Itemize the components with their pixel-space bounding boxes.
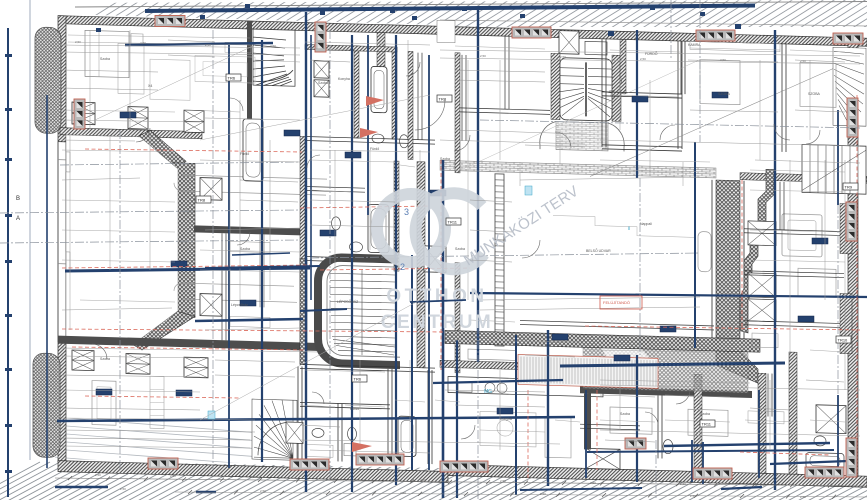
svg-text:OTTHON: OTTHON xyxy=(386,286,487,307)
svg-text:2,50: 2,50 xyxy=(500,479,506,483)
svg-text:3: 3 xyxy=(404,207,409,217)
svg-text:KAMRA: KAMRA xyxy=(688,43,701,47)
svg-text:2,50: 2,50 xyxy=(260,489,266,493)
svg-text:Fürdő: Fürdő xyxy=(370,147,379,151)
svg-text:TR8: TR8 xyxy=(198,198,206,203)
svg-text:Szoba: Szoba xyxy=(455,247,465,251)
svg-text:2,50: 2,50 xyxy=(720,58,726,62)
svg-text:2,50: 2,50 xyxy=(250,475,256,479)
svg-text:FELÚJÍTANDÓ: FELÚJÍTANDÓ xyxy=(603,300,630,305)
svg-text:TR6: TR6 xyxy=(228,76,236,81)
svg-text:Szoba: Szoba xyxy=(700,412,710,416)
svg-text:2,50: 2,50 xyxy=(270,44,276,48)
svg-text:2,50: 2,50 xyxy=(680,482,686,486)
svg-text:FÜRDŐ: FÜRDŐ xyxy=(645,51,658,56)
svg-text:Szoba: Szoba xyxy=(440,157,450,161)
svg-text:TR11: TR11 xyxy=(448,220,458,225)
svg-text:CENTRUM: CENTRUM xyxy=(381,312,494,333)
svg-text:2,50: 2,50 xyxy=(800,59,806,63)
svg-text:TR9: TR9 xyxy=(845,185,853,190)
svg-text:2,50: 2,50 xyxy=(170,474,176,478)
svg-text:A: A xyxy=(16,216,20,222)
svg-text:Konyha: Konyha xyxy=(500,417,512,421)
svg-text:2,50: 2,50 xyxy=(835,484,841,488)
svg-text:2,50: 2,50 xyxy=(420,478,426,482)
svg-text:2,50: 2,50 xyxy=(760,483,766,487)
svg-text:2,50: 2,50 xyxy=(205,43,211,47)
svg-text:Nappali: Nappali xyxy=(640,222,652,226)
svg-text:2,50: 2,50 xyxy=(120,487,126,491)
svg-text:TR8: TR8 xyxy=(439,97,447,102)
svg-text:TR10: TR10 xyxy=(838,338,849,343)
svg-text:2,50: 2,50 xyxy=(540,492,546,496)
svg-text:TR6: TR6 xyxy=(354,377,362,382)
svg-text:SZOBA: SZOBA xyxy=(718,92,731,96)
svg-text:BELSŐ UDVAR: BELSŐ UDVAR xyxy=(586,248,611,253)
svg-text:Szoba: Szoba xyxy=(240,247,250,251)
svg-text:Szoba: Szoba xyxy=(100,57,110,61)
svg-text:SZOBA: SZOBA xyxy=(808,92,821,96)
svg-text:LÉPCSŐHÁZ: LÉPCSŐHÁZ xyxy=(337,299,359,304)
svg-text:2: 2 xyxy=(400,262,405,272)
svg-text:2,50: 2,50 xyxy=(95,473,101,477)
svg-text:2,50: 2,50 xyxy=(560,55,566,59)
svg-text:Szoba: Szoba xyxy=(620,412,630,416)
svg-text:Fürdő: Fürdő xyxy=(240,152,249,156)
svg-text:MG: MG xyxy=(484,389,492,395)
svg-text:2,50: 2,50 xyxy=(590,481,596,485)
svg-text:2,50: 2,50 xyxy=(400,491,406,495)
svg-text:2,50: 2,50 xyxy=(480,54,486,58)
svg-text:Lépcsőház: Lépcsőház xyxy=(231,303,248,307)
svg-text:Konyha: Konyha xyxy=(338,77,350,81)
svg-text:Szoba: Szoba xyxy=(100,357,110,361)
svg-text:2,50: 2,50 xyxy=(690,494,696,498)
svg-text:2,50: 2,50 xyxy=(800,495,806,499)
svg-text:2,50: 2,50 xyxy=(640,57,646,61)
svg-text:TR11: TR11 xyxy=(702,422,712,427)
svg-text:ii: ii xyxy=(628,226,630,232)
svg-text:B: B xyxy=(16,196,20,202)
svg-text:Fürdő: Fürdő xyxy=(350,407,359,411)
svg-text:X4: X4 xyxy=(148,84,152,88)
svg-text:Szoba: Szoba xyxy=(318,81,328,85)
svg-text:2,50: 2,50 xyxy=(330,477,336,481)
